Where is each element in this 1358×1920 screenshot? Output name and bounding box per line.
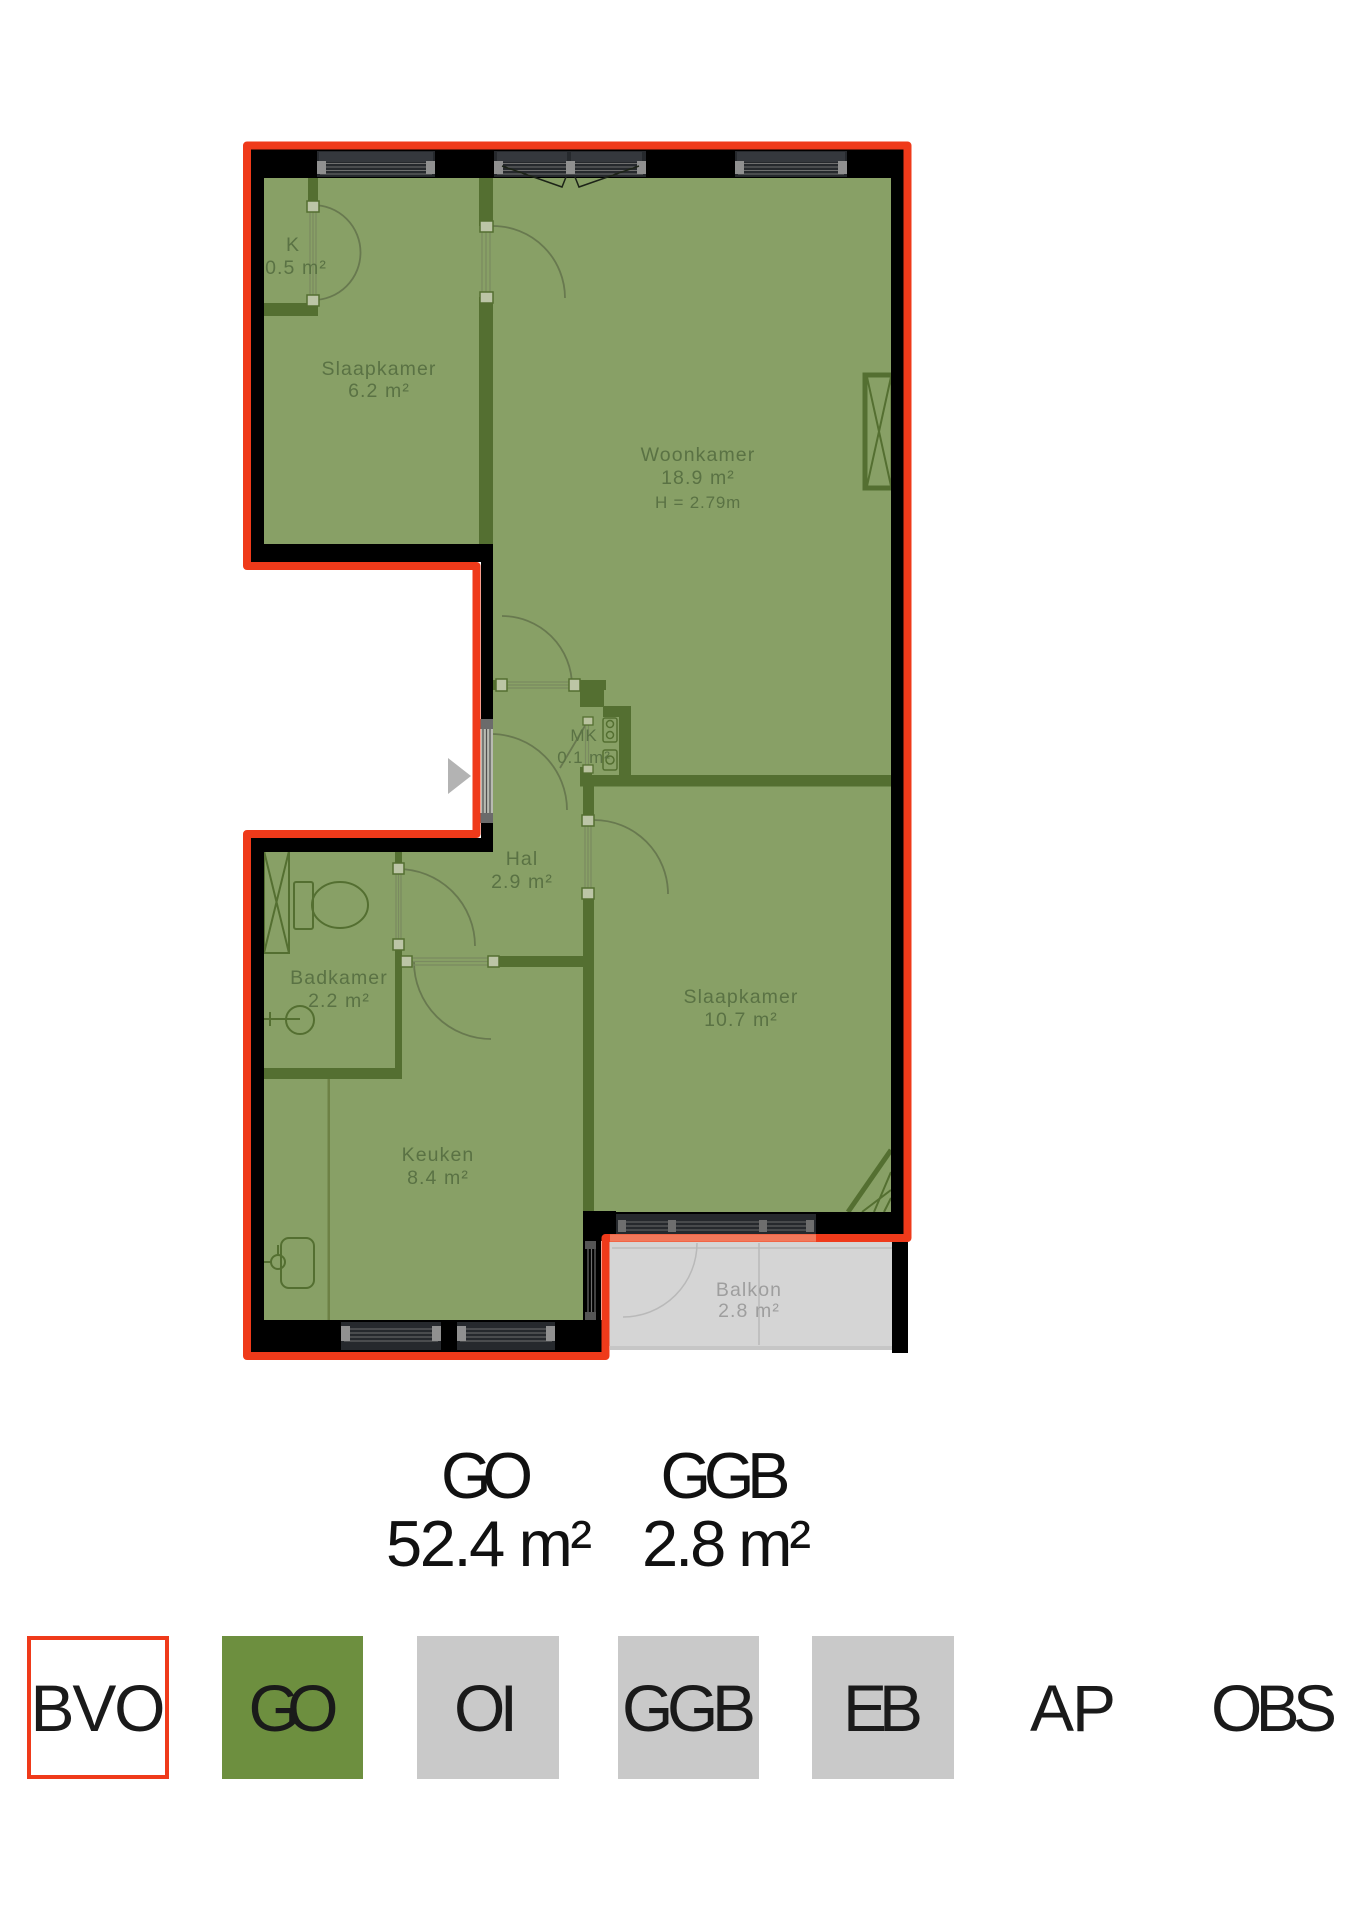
svg-text:OI: OI	[454, 1671, 518, 1745]
svg-text:0.1 m²: 0.1 m²	[557, 748, 611, 767]
svg-text:GGB: GGB	[661, 1439, 791, 1512]
svg-text:52.4 m²: 52.4 m²	[386, 1507, 592, 1580]
svg-text:MK: MK	[570, 726, 597, 745]
svg-text:10.7 m²: 10.7 m²	[704, 1009, 778, 1031]
svg-text:Hal: Hal	[506, 848, 539, 870]
svg-text:Slaapkamer: Slaapkamer	[321, 358, 436, 380]
svg-text:H = 2.79m: H = 2.79m	[655, 493, 741, 512]
svg-text:Woonkamer: Woonkamer	[641, 444, 756, 466]
svg-text:OBS: OBS	[1211, 1671, 1337, 1745]
svg-text:Balkon: Balkon	[716, 1279, 782, 1301]
svg-text:8.4 m²: 8.4 m²	[407, 1167, 469, 1189]
svg-text:18.9 m²: 18.9 m²	[661, 467, 735, 489]
svg-text:BVO: BVO	[31, 1671, 166, 1745]
svg-text:Keuken: Keuken	[402, 1144, 475, 1166]
svg-text:0.5 m²: 0.5 m²	[265, 257, 327, 279]
svg-text:Slaapkamer: Slaapkamer	[683, 986, 798, 1008]
svg-text:GO: GO	[441, 1439, 533, 1512]
svg-text:2.2 m²: 2.2 m²	[308, 990, 370, 1012]
svg-text:K: K	[286, 234, 300, 256]
svg-text:2.8 m²: 2.8 m²	[718, 1300, 780, 1322]
svg-text:2.9 m²: 2.9 m²	[491, 871, 553, 893]
svg-text:GGB: GGB	[622, 1671, 756, 1745]
svg-text:AP: AP	[1030, 1671, 1116, 1745]
svg-text:Badkamer: Badkamer	[290, 967, 388, 989]
svg-text:2.8 m²: 2.8 m²	[642, 1507, 811, 1580]
svg-text:GO: GO	[249, 1671, 339, 1745]
svg-text:6.2 m²: 6.2 m²	[348, 380, 410, 402]
svg-text:EB: EB	[843, 1671, 923, 1745]
